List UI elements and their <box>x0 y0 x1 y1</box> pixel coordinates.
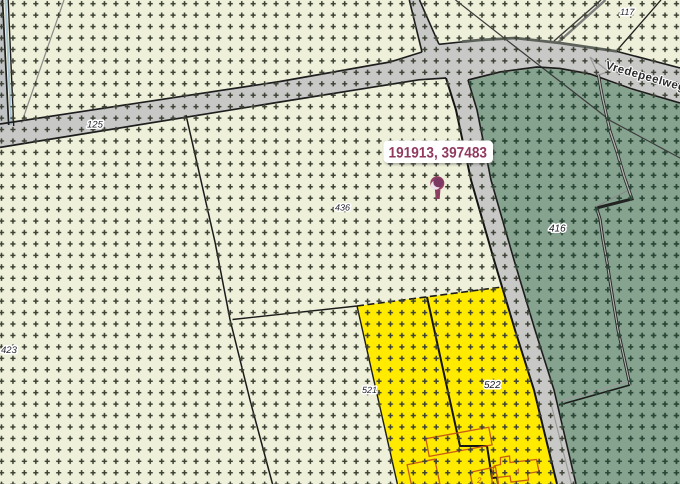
svg-text:521: 521 <box>362 385 377 395</box>
svg-text:2: 2 <box>476 476 482 484</box>
svg-text:191913, 397483: 191913, 397483 <box>389 145 488 162</box>
svg-text:4: 4 <box>515 467 520 476</box>
svg-text:125: 125 <box>87 120 104 131</box>
svg-text:436: 436 <box>335 203 350 213</box>
svg-text:423: 423 <box>1 345 18 356</box>
svg-text:416: 416 <box>549 224 566 235</box>
svg-text:117: 117 <box>620 7 635 17</box>
svg-text:522: 522 <box>484 380 501 391</box>
